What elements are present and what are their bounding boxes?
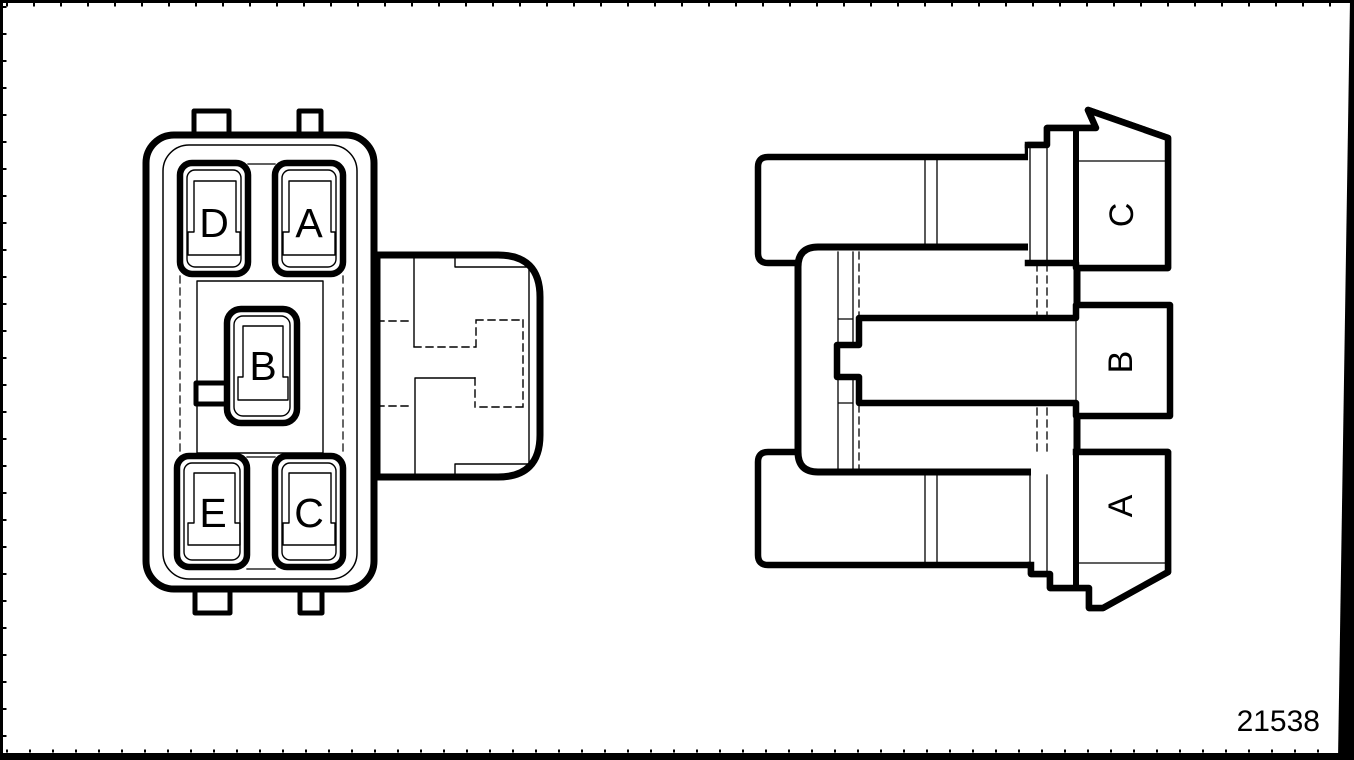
figure-number: 21538: [1237, 705, 1320, 738]
side-lock-protrusion: [377, 255, 540, 477]
cavity-label-b: B: [249, 343, 276, 389]
cavity-label-e: E: [199, 490, 226, 536]
right-connector-side-view: C B A: [758, 110, 1170, 608]
terminal-label-b: B: [1102, 351, 1140, 374]
connector-diagram-canvas: D A B E C C B A 21538: [0, 0, 1354, 760]
cavity-label-c: C: [294, 490, 324, 536]
cavity-label-a: A: [295, 200, 323, 246]
connector-diagram-page: D A B E C C B A 21538: [0, 0, 1354, 760]
border-top: [0, 0, 1354, 3]
border-bottom: [0, 753, 1354, 760]
cavity-label-d: D: [199, 200, 229, 246]
terminal-label-a: A: [1102, 494, 1140, 517]
border-right: [1338, 0, 1354, 760]
left-connector-front-view: D A B E C: [146, 111, 540, 613]
terminal-label-c: C: [1103, 203, 1141, 228]
